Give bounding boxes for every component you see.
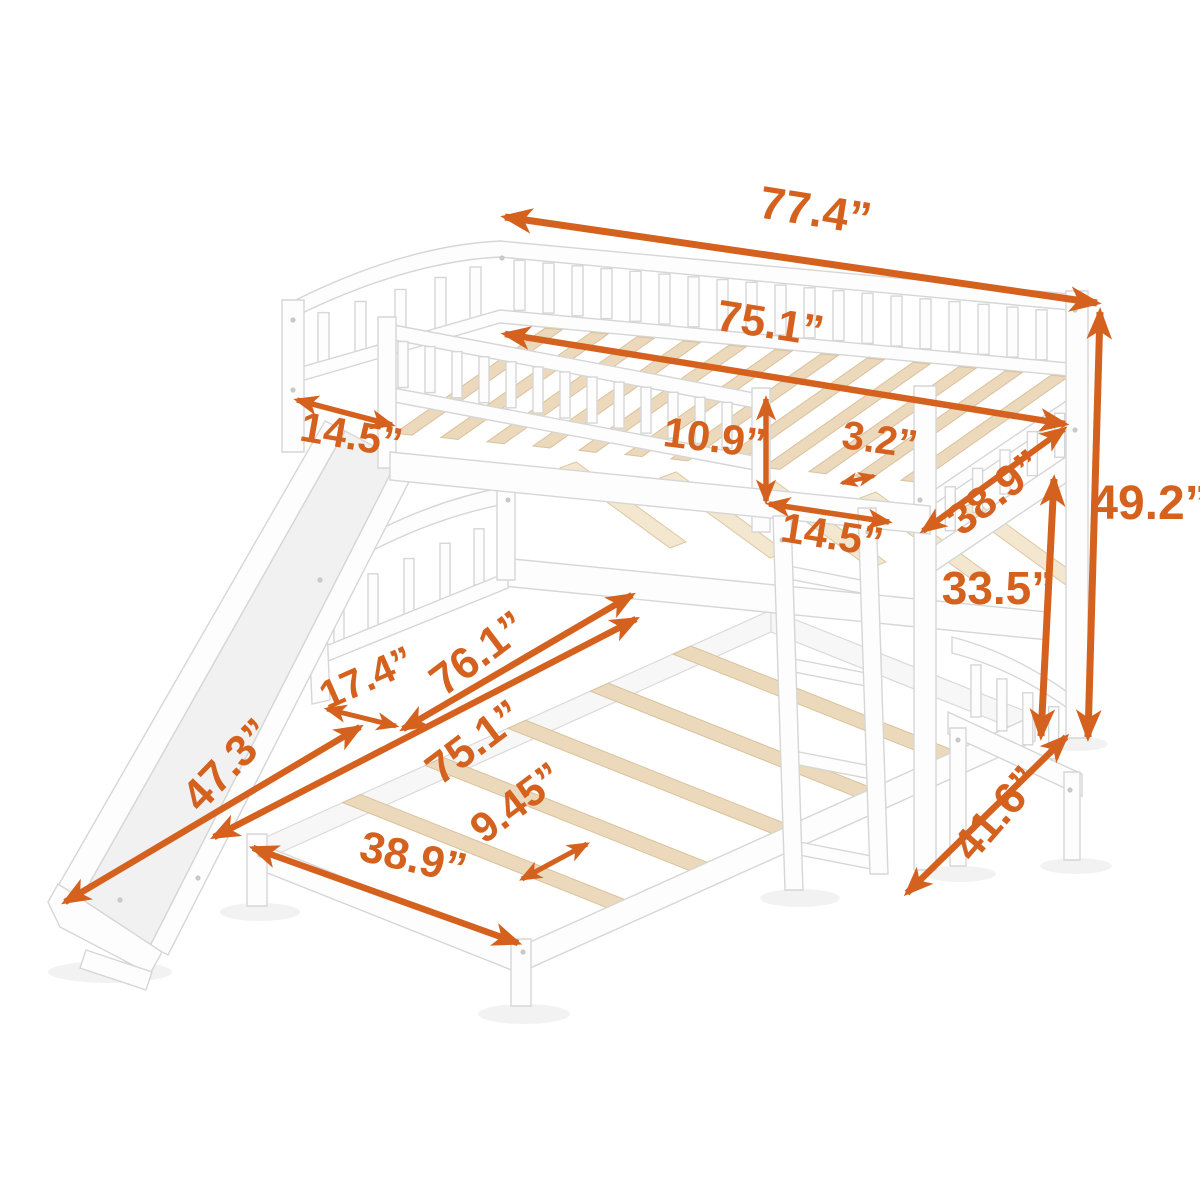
- railing-slat: [688, 277, 699, 327]
- screw-dot: [499, 255, 504, 260]
- screw-dot: [1067, 787, 1072, 792]
- screw-dot: [955, 737, 960, 742]
- dimension-label-overall-length: 77.4”: [756, 176, 875, 245]
- guardrail-slat: [533, 367, 543, 413]
- guardrail-slat: [452, 352, 462, 398]
- screw-dot: [917, 497, 922, 502]
- railing-slat: [978, 304, 989, 354]
- railing-slat: [601, 269, 612, 319]
- railing-slat: [543, 263, 554, 313]
- screw-dot: [1072, 307, 1077, 312]
- railing-slat: [630, 271, 641, 321]
- guardrail-slat: [560, 372, 570, 418]
- railing-slat: [1007, 307, 1018, 357]
- dimension-label-overall-height: 49.2”: [1091, 477, 1200, 530]
- guardrail-slat: [506, 362, 516, 408]
- railing-slat: [949, 302, 960, 352]
- screw-dot: [117, 897, 122, 902]
- end-slat: [971, 665, 981, 717]
- railing-slat: [659, 274, 670, 324]
- railing-slat: [435, 278, 446, 334]
- railing-slat: [891, 296, 902, 346]
- railing-slat: [862, 293, 873, 343]
- end-slat: [440, 543, 450, 599]
- dimension-label-slat-thickness: 3.2”: [839, 413, 920, 467]
- dimension-overall-height: 49.2”: [1088, 312, 1200, 737]
- screw-dot: [195, 875, 200, 880]
- dimension-arrow-slat-thickness: [842, 476, 874, 483]
- trundle-slat: [590, 683, 872, 796]
- guardrail-slat: [398, 342, 408, 388]
- railing-slat: [514, 260, 525, 310]
- guardrail-slat: [479, 357, 489, 403]
- railing-slat: [833, 291, 844, 341]
- guardrail-slat: [425, 347, 435, 393]
- end-slat: [368, 574, 378, 630]
- product-dimension-image: 77.4”75.1”14.5”10.9”3.2”38.9”14.5”49.2”3…: [0, 0, 1200, 1200]
- railing-slat: [1036, 310, 1047, 360]
- screw-dot: [520, 949, 525, 954]
- guardrail-slat: [587, 377, 597, 423]
- end-slat: [474, 529, 484, 585]
- screw-dot: [505, 497, 510, 502]
- railing-slat: [470, 267, 481, 323]
- screw-dot: [1072, 427, 1077, 432]
- dimension-label-bunk-clearance: 33.5”: [942, 562, 1055, 614]
- end-slat: [1023, 693, 1033, 745]
- screw-dot: [290, 387, 295, 392]
- screw-dot: [290, 317, 295, 322]
- end-slat: [404, 559, 414, 615]
- end-slat: [997, 679, 1007, 731]
- guardrail-slat: [641, 387, 651, 433]
- railing-slat: [572, 266, 583, 316]
- guardrail-slat: [614, 382, 624, 428]
- bunk-bed-diagram: 77.4”75.1”14.5”10.9”3.2”38.9”14.5”49.2”3…: [0, 0, 1200, 1200]
- screw-dot: [317, 577, 322, 582]
- railing-slat: [920, 299, 931, 349]
